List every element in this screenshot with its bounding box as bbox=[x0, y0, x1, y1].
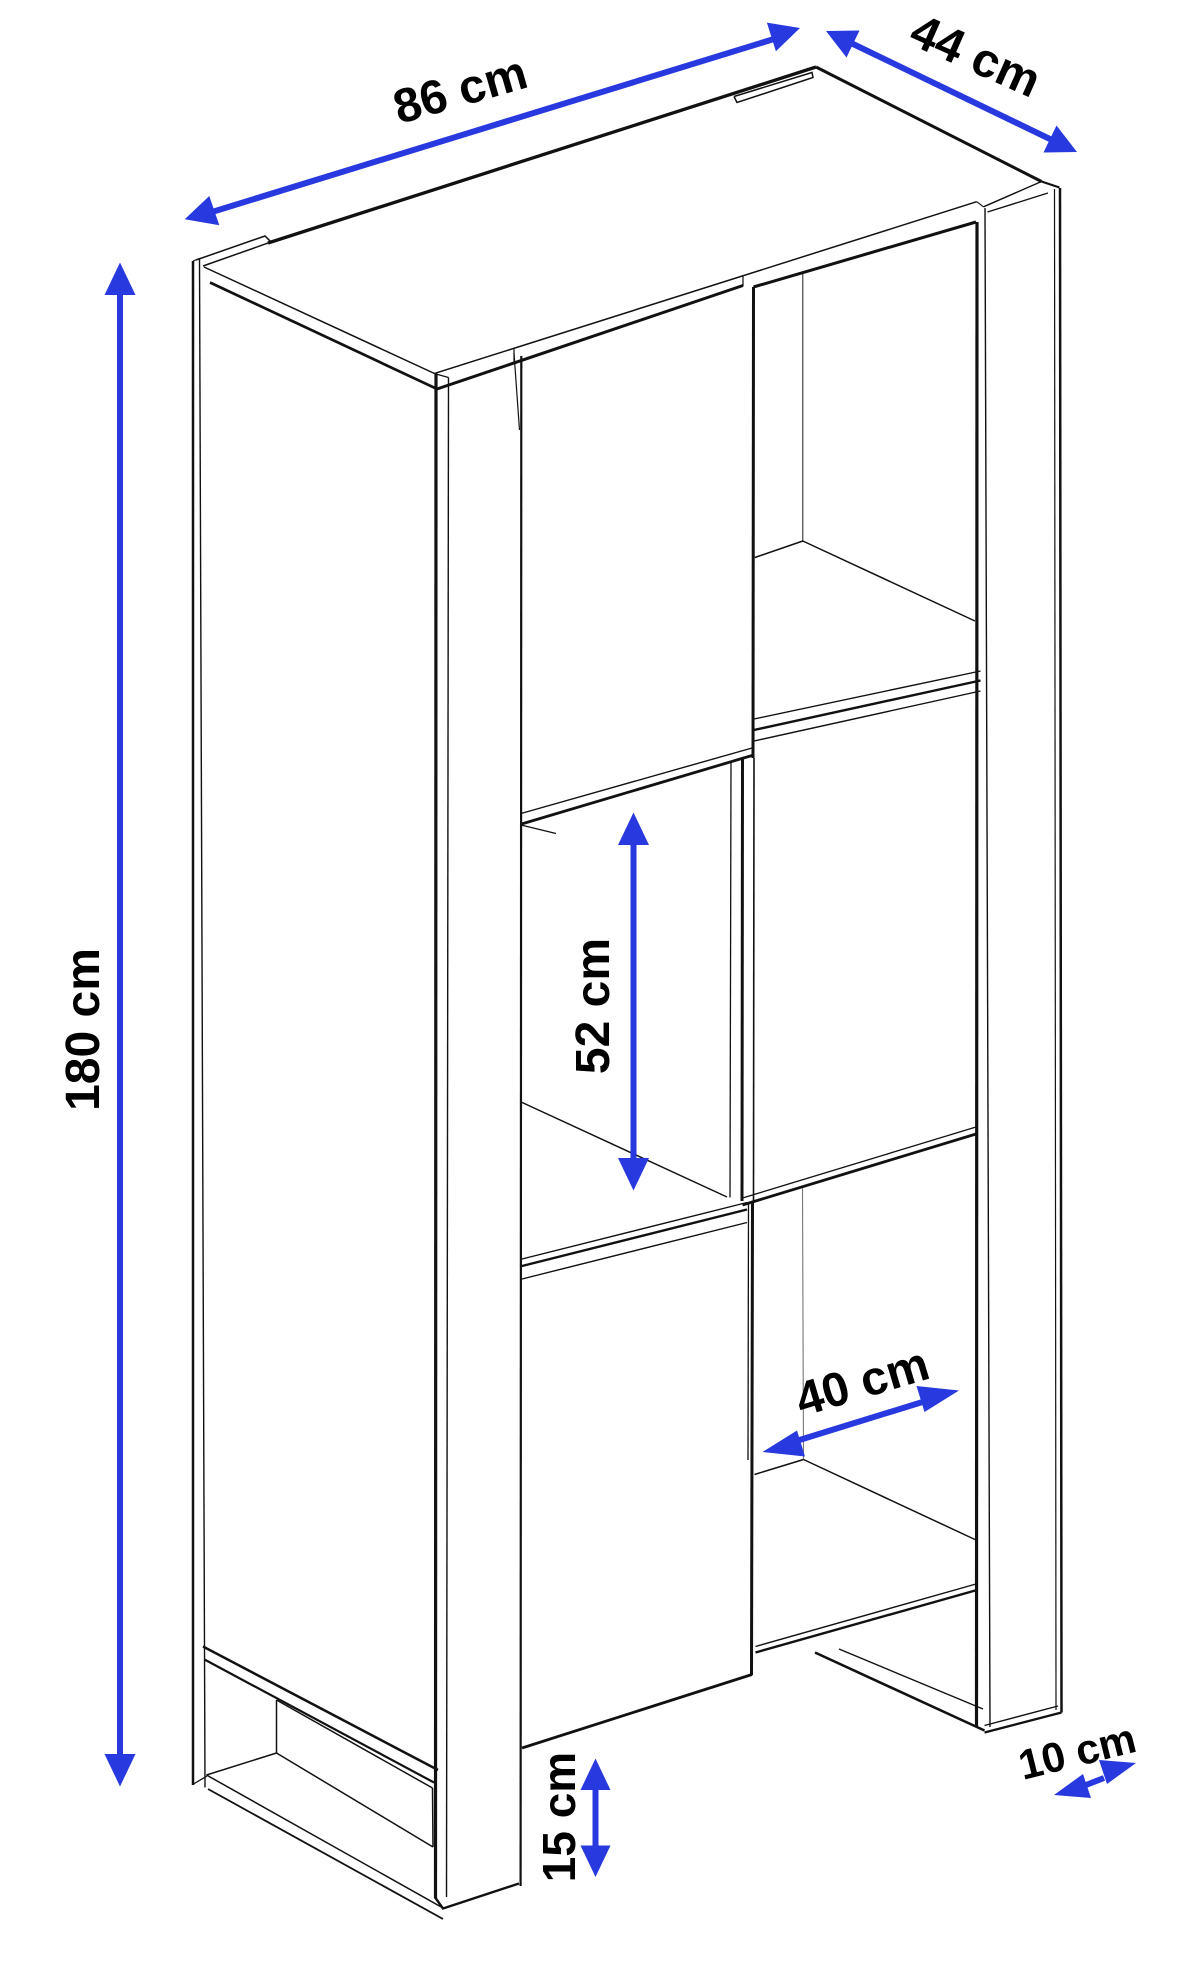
svg-text:180 cm: 180 cm bbox=[57, 948, 110, 1111]
svg-text:15 cm: 15 cm bbox=[533, 1752, 585, 1882]
svg-text:52 cm: 52 cm bbox=[567, 938, 620, 1074]
